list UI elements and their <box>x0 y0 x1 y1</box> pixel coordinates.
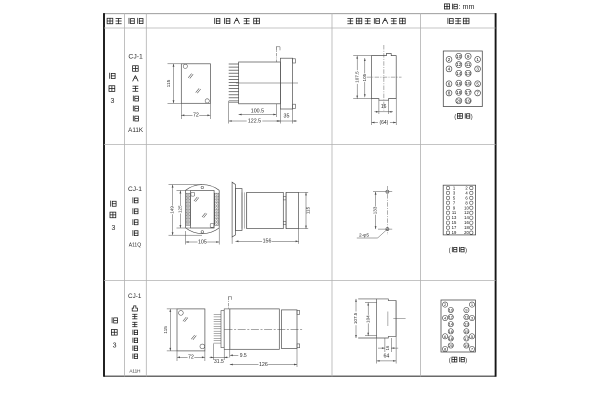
svg-text:15: 15 <box>464 329 469 334</box>
svg-text:2: 2 <box>448 57 451 62</box>
svg-text:115: 115 <box>166 79 172 87</box>
svg-text:15: 15 <box>466 81 472 86</box>
svg-text:149: 149 <box>170 206 175 214</box>
svg-text:100.5: 100.5 <box>251 109 264 115</box>
svg-text:3: 3 <box>476 67 479 72</box>
svg-text:105: 105 <box>362 73 367 81</box>
svg-text:CJ-1: CJ-1 <box>128 53 143 60</box>
svg-text:3: 3 <box>111 98 115 105</box>
svg-text:19: 19 <box>466 99 472 104</box>
svg-text:14: 14 <box>449 322 454 327</box>
svg-text:16: 16 <box>381 104 387 110</box>
svg-text:72: 72 <box>193 113 199 119</box>
svg-text:(64): (64) <box>379 120 388 126</box>
svg-text:16: 16 <box>449 329 454 334</box>
svg-text:CJ-1: CJ-1 <box>128 293 142 300</box>
svg-text:156: 156 <box>263 239 272 245</box>
svg-text:105: 105 <box>198 239 207 245</box>
svg-text:10: 10 <box>449 307 454 312</box>
svg-text:5: 5 <box>476 82 479 87</box>
svg-text:2-φ5: 2-φ5 <box>359 233 369 239</box>
svg-text:9.5: 9.5 <box>240 353 247 359</box>
svg-text:104: 104 <box>365 315 370 323</box>
svg-text:A11H: A11H <box>129 369 140 374</box>
svg-text:122.5: 122.5 <box>248 118 261 124</box>
svg-text:13: 13 <box>466 71 472 76</box>
svg-text:19: 19 <box>464 343 469 348</box>
svg-text:mm: mm <box>463 2 475 11</box>
svg-text:17: 17 <box>466 90 472 95</box>
svg-text:8: 8 <box>448 91 451 96</box>
svg-text:14: 14 <box>456 71 462 76</box>
svg-text:18: 18 <box>456 90 462 95</box>
svg-text:10: 10 <box>456 54 462 59</box>
svg-text:35: 35 <box>284 113 290 119</box>
svg-text:125: 125 <box>178 205 183 213</box>
svg-text:13: 13 <box>464 322 469 327</box>
svg-text:12: 12 <box>449 315 454 320</box>
svg-text::: : <box>459 4 461 11</box>
svg-text:A11Q: A11Q <box>129 243 142 249</box>
svg-text:3: 3 <box>112 225 116 232</box>
svg-text:6: 6 <box>448 82 451 87</box>
svg-text:20: 20 <box>449 343 454 348</box>
svg-text:133: 133 <box>373 206 378 214</box>
svg-text:): ) <box>471 113 473 120</box>
svg-text:12: 12 <box>456 62 462 67</box>
svg-text:18: 18 <box>449 336 454 341</box>
svg-text:17: 17 <box>464 336 469 341</box>
svg-text:115: 115 <box>163 326 169 334</box>
svg-text:107.5: 107.5 <box>354 71 359 83</box>
svg-text:19: 19 <box>452 230 457 235</box>
svg-text:72: 72 <box>188 355 194 361</box>
svg-text:A11K: A11K <box>128 127 144 134</box>
svg-text:3: 3 <box>113 342 117 349</box>
svg-text:4: 4 <box>448 67 451 72</box>
svg-text:20: 20 <box>464 230 469 235</box>
svg-text:16: 16 <box>385 345 390 350</box>
svg-text:7: 7 <box>476 91 479 96</box>
svg-text:126: 126 <box>259 362 268 368</box>
svg-text:107.5: 107.5 <box>353 312 358 324</box>
svg-text:): ) <box>465 357 467 364</box>
svg-text:16: 16 <box>456 81 462 86</box>
svg-text:1: 1 <box>476 57 479 62</box>
svg-text:64: 64 <box>383 353 389 359</box>
svg-text:31.5: 31.5 <box>214 359 224 365</box>
svg-text:): ) <box>465 247 467 254</box>
svg-text:11: 11 <box>466 62 471 67</box>
svg-text:9: 9 <box>467 54 470 59</box>
svg-text:CJ-1: CJ-1 <box>128 186 142 193</box>
svg-text:20: 20 <box>456 99 462 104</box>
svg-text:115: 115 <box>305 206 310 214</box>
